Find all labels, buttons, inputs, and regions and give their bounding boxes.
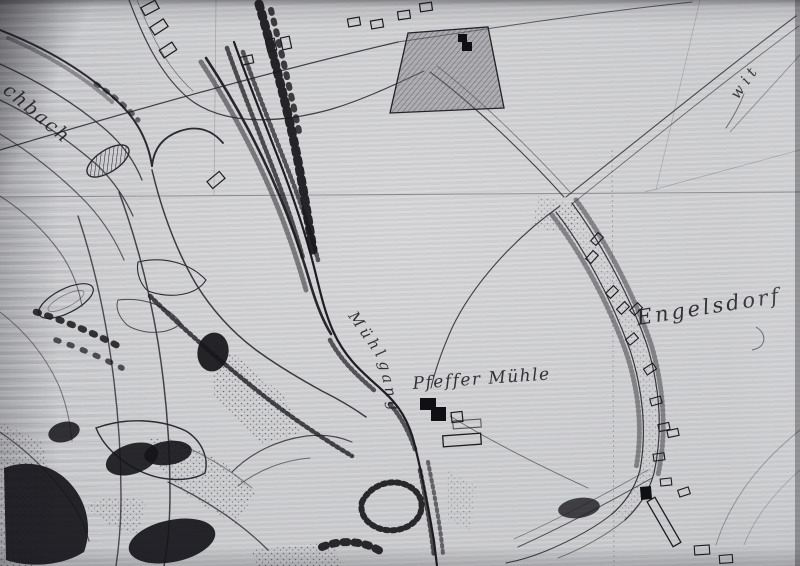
house: [719, 555, 733, 564]
mill-building-black: [431, 407, 446, 421]
long-building: [647, 497, 681, 547]
dark-building: [458, 34, 467, 42]
street-continuation: [506, 514, 612, 563]
house: [159, 42, 176, 58]
house: [420, 2, 433, 12]
dark-building: [462, 42, 472, 51]
house: [398, 10, 411, 20]
grid-line-vertical-right: [612, 150, 614, 566]
house: [660, 478, 672, 486]
mill-barn: [443, 433, 482, 447]
spit-outline: [232, 435, 352, 472]
millrace-label-upper: Mühl: [344, 307, 391, 364]
dark-building: [640, 486, 652, 500]
road-to-corner: [566, 16, 796, 197]
map-drawing: chbach Mühl gang Pfeffer Mühle Engelsdor…: [0, 0, 800, 566]
label-swash: [752, 327, 764, 350]
house: [370, 19, 383, 29]
field-plots: [390, 27, 504, 113]
mill-outbuilding: [453, 419, 481, 429]
photographed-map: chbach Mühl gang Pfeffer Mühle Engelsdor…: [0, 0, 800, 566]
spit-outline: [238, 458, 310, 486]
house: [150, 19, 168, 35]
house: [694, 545, 710, 555]
edge-fragment-label: wit: [727, 60, 764, 102]
woodland-corner: [4, 464, 88, 565]
house: [347, 17, 360, 27]
house: [678, 487, 691, 497]
tree-row: [227, 48, 303, 258]
village-name-label: Engelsdorf: [634, 283, 783, 330]
mill-name-label: Pfeffer Mühle: [411, 364, 551, 394]
grid-line-vertical-left: [214, 0, 216, 195]
stream-name-label: chbach: [0, 79, 75, 148]
field-arc: [716, 430, 800, 545]
road-to-mill: [431, 206, 560, 388]
pfeffer-muehle-buildings: [420, 398, 481, 447]
road-mill-southeast: [450, 416, 588, 488]
island-outline: [34, 277, 98, 326]
tree-mass: [46, 418, 82, 446]
house: [667, 428, 679, 437]
field-arc: [744, 470, 800, 545]
tree-scatter: [36, 312, 120, 347]
house: [207, 171, 225, 188]
tree-ring: [361, 482, 421, 530]
house: [141, 0, 159, 15]
boundary-line: [645, 150, 800, 192]
